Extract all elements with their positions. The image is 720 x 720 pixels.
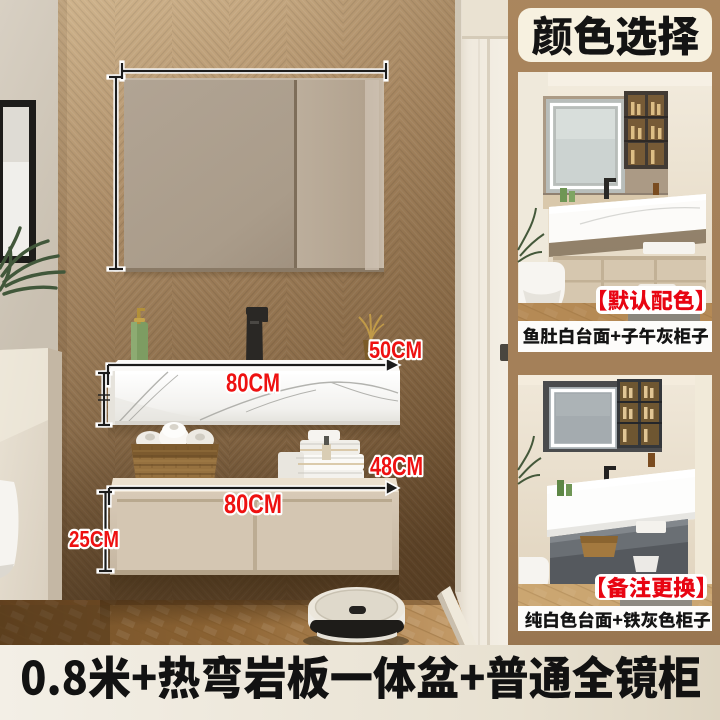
svg-text:80CM: 80CM — [224, 489, 282, 519]
svg-text:80CM: 80CM — [226, 368, 280, 398]
svg-text:50CM: 50CM — [369, 337, 422, 364]
svg-text:48CM: 48CM — [370, 451, 423, 481]
svg-text:25CM: 25CM — [69, 526, 119, 552]
